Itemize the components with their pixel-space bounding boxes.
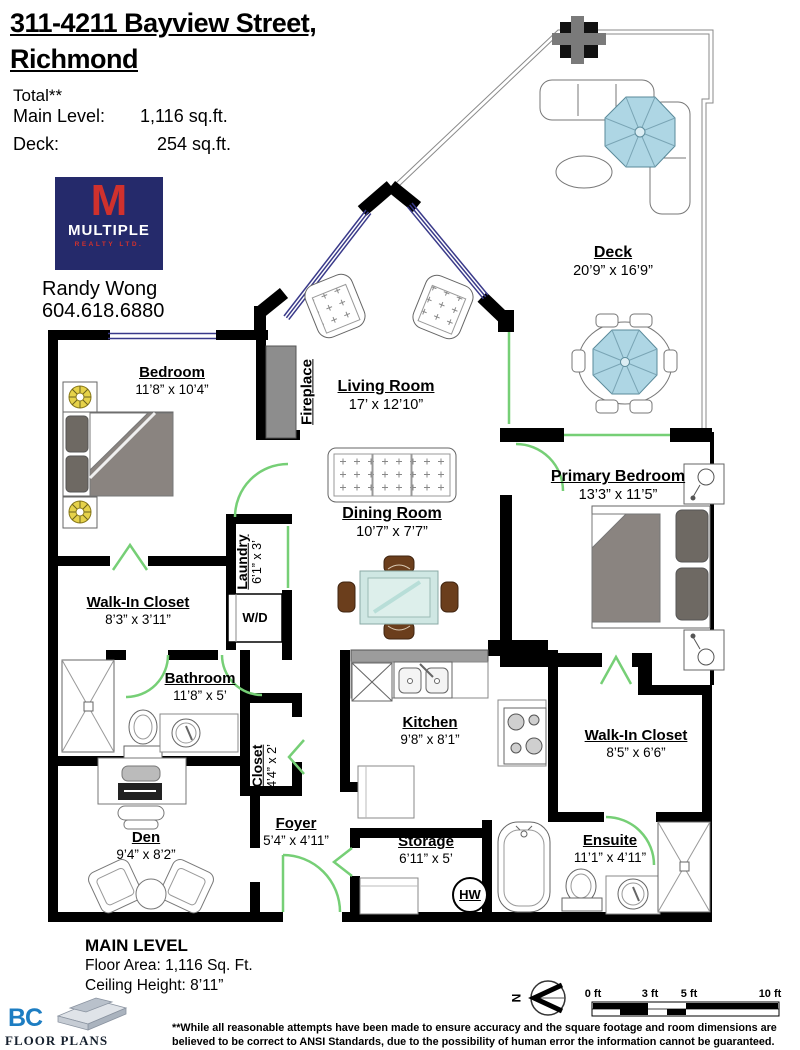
sink-icon [160,714,238,752]
brokerage-logo: M MULTIPLE REALTY LTD. [55,177,163,270]
toilet-icon [562,869,602,911]
agent-phone: 604.618.6880 [42,300,164,323]
room-label-storage: Storage 6’11” x 5’ [398,833,454,867]
floor-area-line: Floor Area: 1,116 Sq. Ft. [85,957,253,975]
total-label: Total** [13,86,62,106]
room-label-walk-in-closet-left: Walk-In Closet 8’3” x 3’11” [87,594,190,628]
bc-floorplans-logo-graphic [58,998,126,1030]
agent-name: Randy Wong [42,278,157,301]
brokerage-name: MULTIPLE [68,223,150,239]
washer-dryer-label: W/D [242,610,267,625]
room-label-bathroom: Bathroom 11’8” x 5’ [165,670,236,704]
room-label-dining-room: Dining Room 10’7” x 7’7” [342,505,442,541]
disclaimer-line2: be correct to ANSI Standards, due to the… [172,1036,775,1050]
fridge-icon [352,663,392,701]
main-level-value: 1,116 sq.ft. [140,106,228,127]
compass-north-label: N [509,994,523,1003]
floor-plans-logo-text: FLOOR PLANS [5,1033,108,1049]
patio-umbrella-icon [605,97,675,167]
room-label-foyer: Foyer 5’4” x 4’11” [263,815,329,849]
bathtub-icon [498,822,550,912]
room-label-walk-in-closet-right: Walk-In Closet 8’5” x 6’6” [585,727,688,761]
lamp-icon [69,501,91,523]
room-label-fireplace: Fireplace [298,359,315,425]
room-label-kitchen: Kitchen 9’8” x 8’1” [400,714,459,748]
shower-icon [658,822,710,912]
page-title-line1: 311-4211 Bayview Street, [10,8,316,39]
brokerage-subtitle: REALTY LTD. [75,241,144,248]
main-level-label: Main Level: [13,106,105,127]
dining-furniture [338,556,458,639]
level-title: MAIN LEVEL [85,936,188,956]
sink-icon [606,876,660,914]
bc-logo-text: BC [8,1004,42,1033]
hot-water-label: HW [459,887,481,902]
ceiling-height-line: Ceiling Height: 8’11” [85,977,223,995]
room-label-closet: Closet 4’4” x 2’ [249,744,279,788]
room-label-living-room: Living Room 17’ x 12’10” [338,378,435,414]
room-label-primary-bedroom: Primary Bedroom 13’3” x 11’5” [551,468,685,504]
deck-area-value: 254 sq.ft. [157,134,231,155]
floor-plan-page: 311-4211 Bayview Street, Richmond Total*… [0,0,800,1050]
compass-icon [531,981,565,1015]
sink-icon [394,662,452,698]
scale-tick-0: 0 ft [585,988,602,1000]
shower-icon [62,660,114,752]
stove-icon [504,708,546,764]
disclaimer: **While all reasonable attempts have bee… [172,1021,800,1050]
deck-area-label: Deck: [13,134,59,155]
patio-umbrella-icon [593,330,657,394]
page-title-line2: Richmond [10,44,138,75]
room-label-den: Den 9’4” x 8’2” [116,829,175,863]
bedroom-furniture [63,382,173,528]
scale-tick-3: 3 ft [642,988,659,1000]
room-label-ensuite: Ensuite 11’1” x 4’11” [574,832,646,866]
scale-tick-10: 10 ft [759,988,782,1000]
scale-bar [592,1002,779,1016]
scale-tick-5: 5 ft [681,988,698,1000]
toilet-icon [124,710,162,759]
room-label-deck: Deck 20’9” x 16’9” [573,244,653,280]
room-label-laundry: Laundry 6’1” x 3’ [234,534,264,589]
deck-column-cross-icon [552,16,606,64]
lamp-icon [69,386,91,408]
brokerage-logo-m-icon: M [91,179,128,223]
room-label-bedroom: Bedroom 11’8” x 10’4” [135,364,208,398]
fireplace-box [266,346,296,438]
